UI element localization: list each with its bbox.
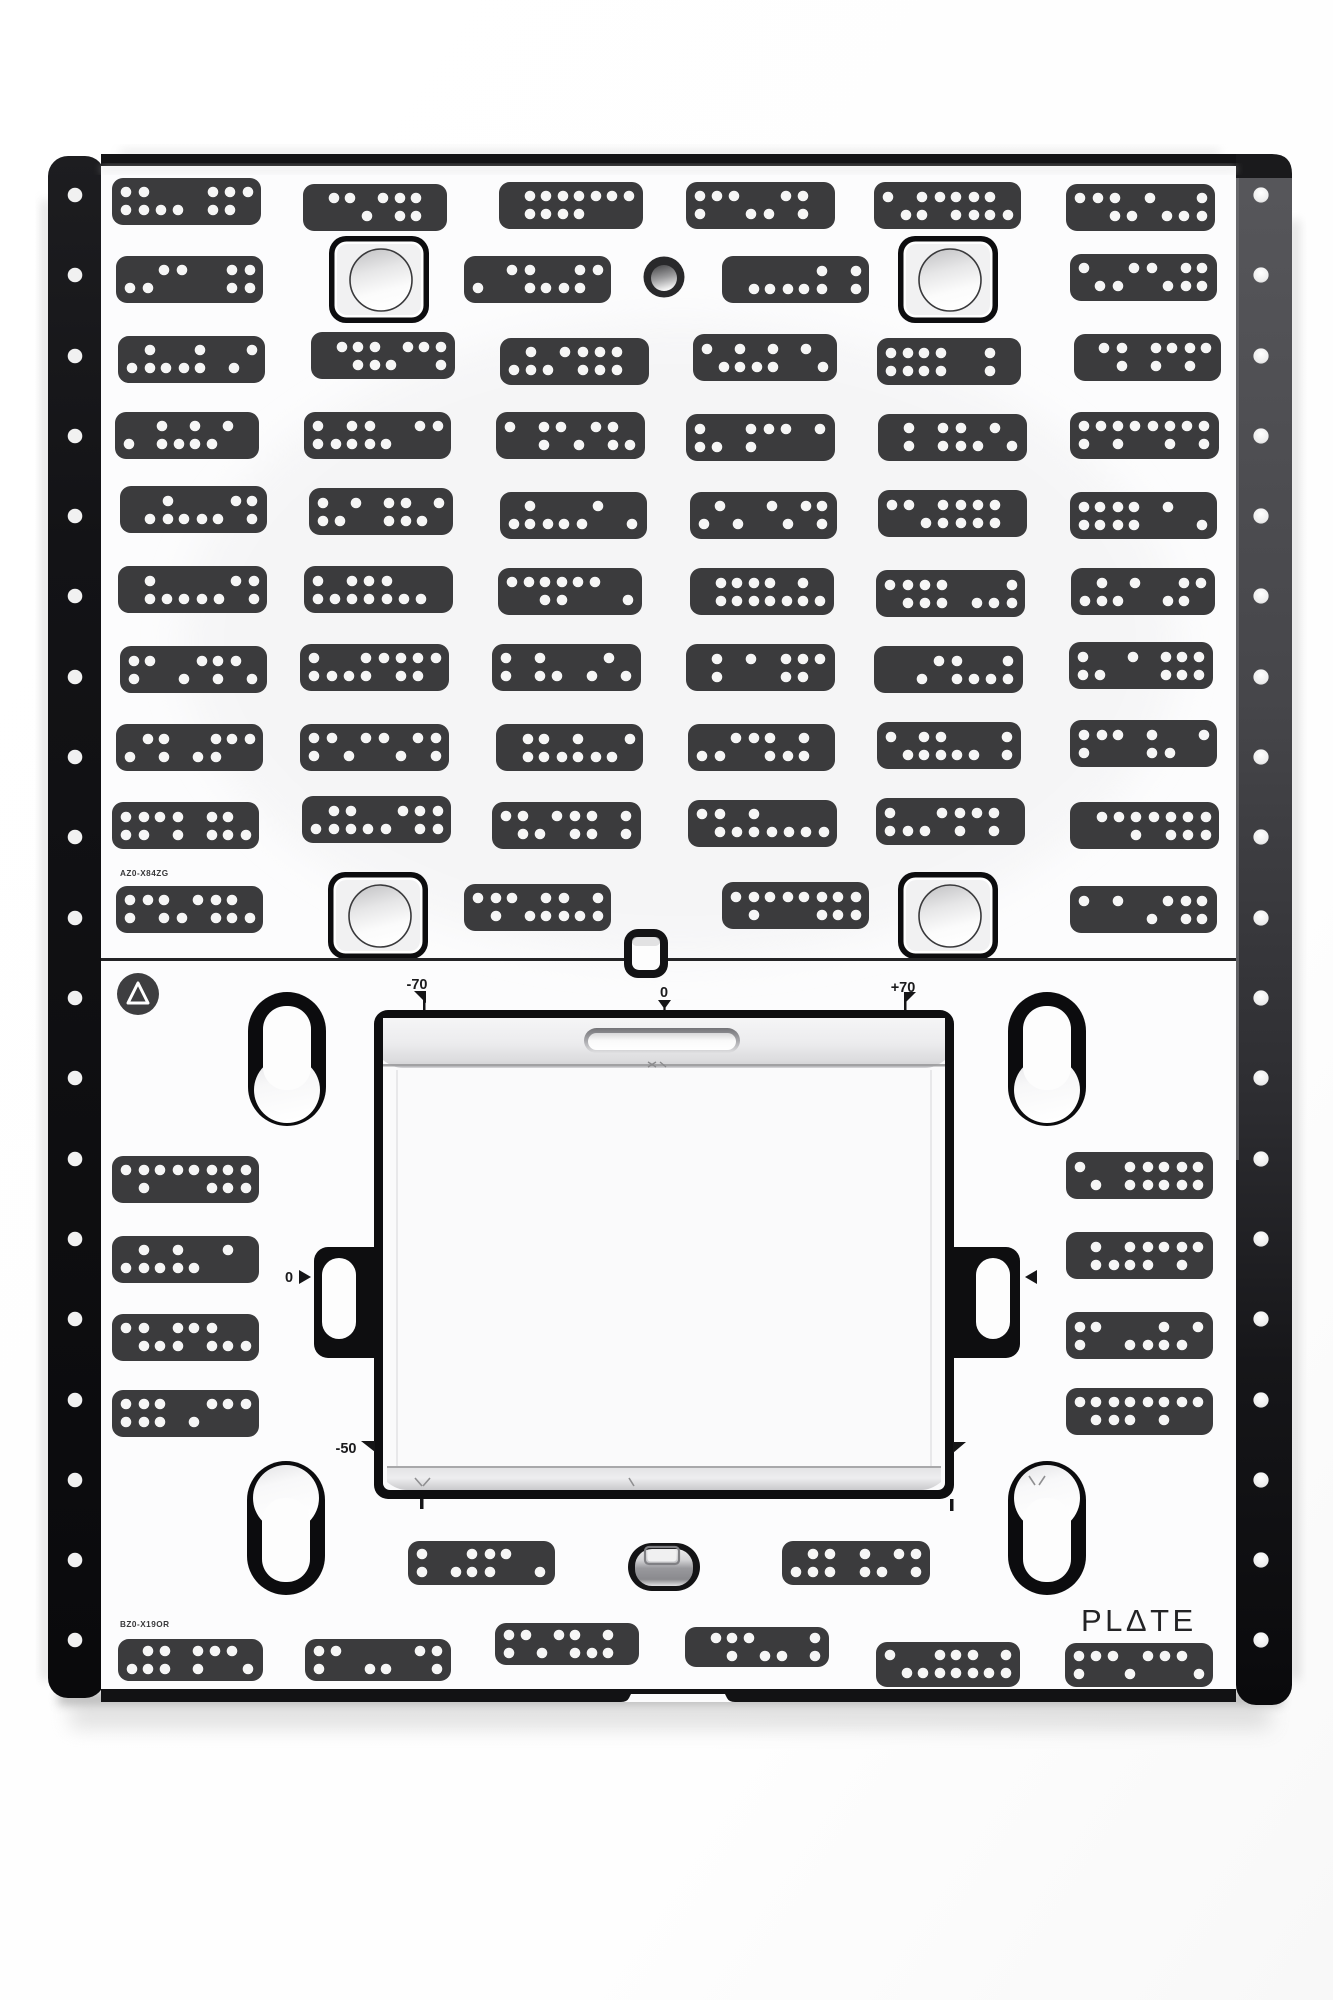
svg-text:0: 0 — [285, 1270, 293, 1286]
svg-text:PLΔTE: PLΔTE — [1081, 1603, 1197, 1638]
svg-text:AZ0-X84ZG: AZ0-X84ZG — [120, 869, 169, 878]
svg-text:-70: -70 — [407, 977, 428, 993]
svg-text:0: 0 — [660, 985, 668, 1001]
svg-text:-50: -50 — [336, 1441, 357, 1457]
svg-text:BZ0-X19OR: BZ0-X19OR — [120, 1620, 170, 1629]
